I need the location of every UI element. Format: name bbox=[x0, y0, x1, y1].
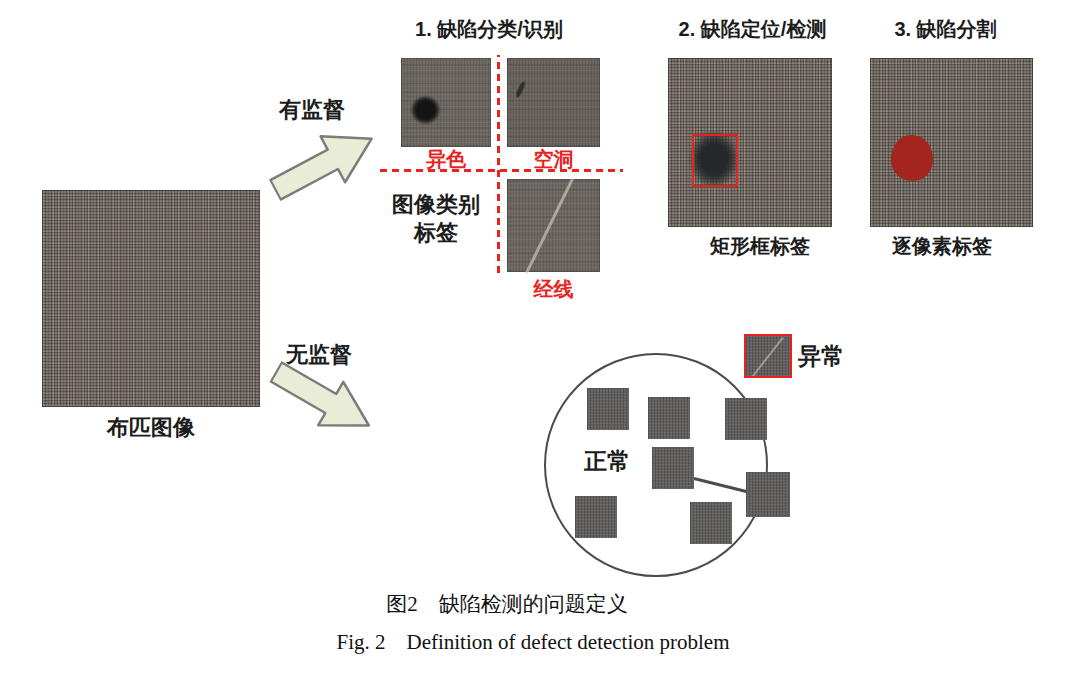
warp-line-defect bbox=[750, 337, 784, 378]
task1-label-warp: 经线 bbox=[507, 276, 600, 303]
task1-sample-hole-defect bbox=[507, 58, 600, 147]
task1-annotation-line1: 图像类别 bbox=[383, 191, 489, 219]
task3-title: 3. 缺陷分割 bbox=[838, 16, 1053, 43]
normal-sample-swatch bbox=[725, 398, 767, 440]
task1-annotation-label: 图像类别 标签 bbox=[383, 191, 489, 247]
task3-sample-image bbox=[870, 58, 1033, 227]
warp-line-defect bbox=[525, 178, 574, 275]
bounding-box-annotation bbox=[692, 134, 738, 187]
caption-english: Fig. 2 Definition of defect detection pr… bbox=[283, 628, 783, 656]
dark-spot-defect bbox=[410, 95, 441, 125]
normal-sample-swatch bbox=[746, 472, 790, 517]
red-dashed-vertical-divider bbox=[497, 55, 500, 273]
figure-canvas: 布匹图像 有监督 无监督 1. 缺陷分类/识别 异色 空洞 图像类别 标签 经线… bbox=[0, 0, 1080, 676]
fabric-source-image bbox=[42, 190, 260, 407]
task1-sample-warp-defect bbox=[507, 179, 600, 272]
supervised-arrow-icon bbox=[261, 113, 386, 215]
task2-sample-image bbox=[668, 58, 832, 227]
normal-sample-swatch bbox=[648, 397, 690, 439]
red-dashed-horizontal-divider bbox=[380, 169, 623, 172]
caption-chinese: 图2 缺陷检测的问题定义 bbox=[307, 590, 707, 618]
normal-sample-swatch bbox=[587, 388, 629, 430]
task2-title: 2. 缺陷定位/检测 bbox=[645, 16, 860, 43]
task1-title: 1. 缺陷分类/识别 bbox=[383, 16, 595, 43]
task1-annotation-line2: 标签 bbox=[383, 219, 489, 247]
supervised-label: 有监督 bbox=[279, 95, 345, 125]
hole-defect-mark bbox=[515, 81, 526, 99]
abnormal-sample-swatch bbox=[744, 334, 792, 378]
pixel-mask-annotation bbox=[891, 135, 933, 181]
normal-sample-swatch bbox=[652, 447, 694, 489]
normal-sample-swatch bbox=[690, 502, 732, 544]
fabric-source-label: 布匹图像 bbox=[42, 413, 260, 443]
task2-annotation-label: 矩形框标签 bbox=[676, 233, 844, 260]
task3-annotation-label: 逐像素标签 bbox=[858, 233, 1026, 260]
cluster-abnormal-label: 异常 bbox=[798, 341, 844, 372]
cluster-normal-label: 正常 bbox=[584, 446, 630, 477]
task1-sample-color-defect bbox=[401, 58, 491, 147]
normal-sample-swatch bbox=[575, 496, 617, 538]
